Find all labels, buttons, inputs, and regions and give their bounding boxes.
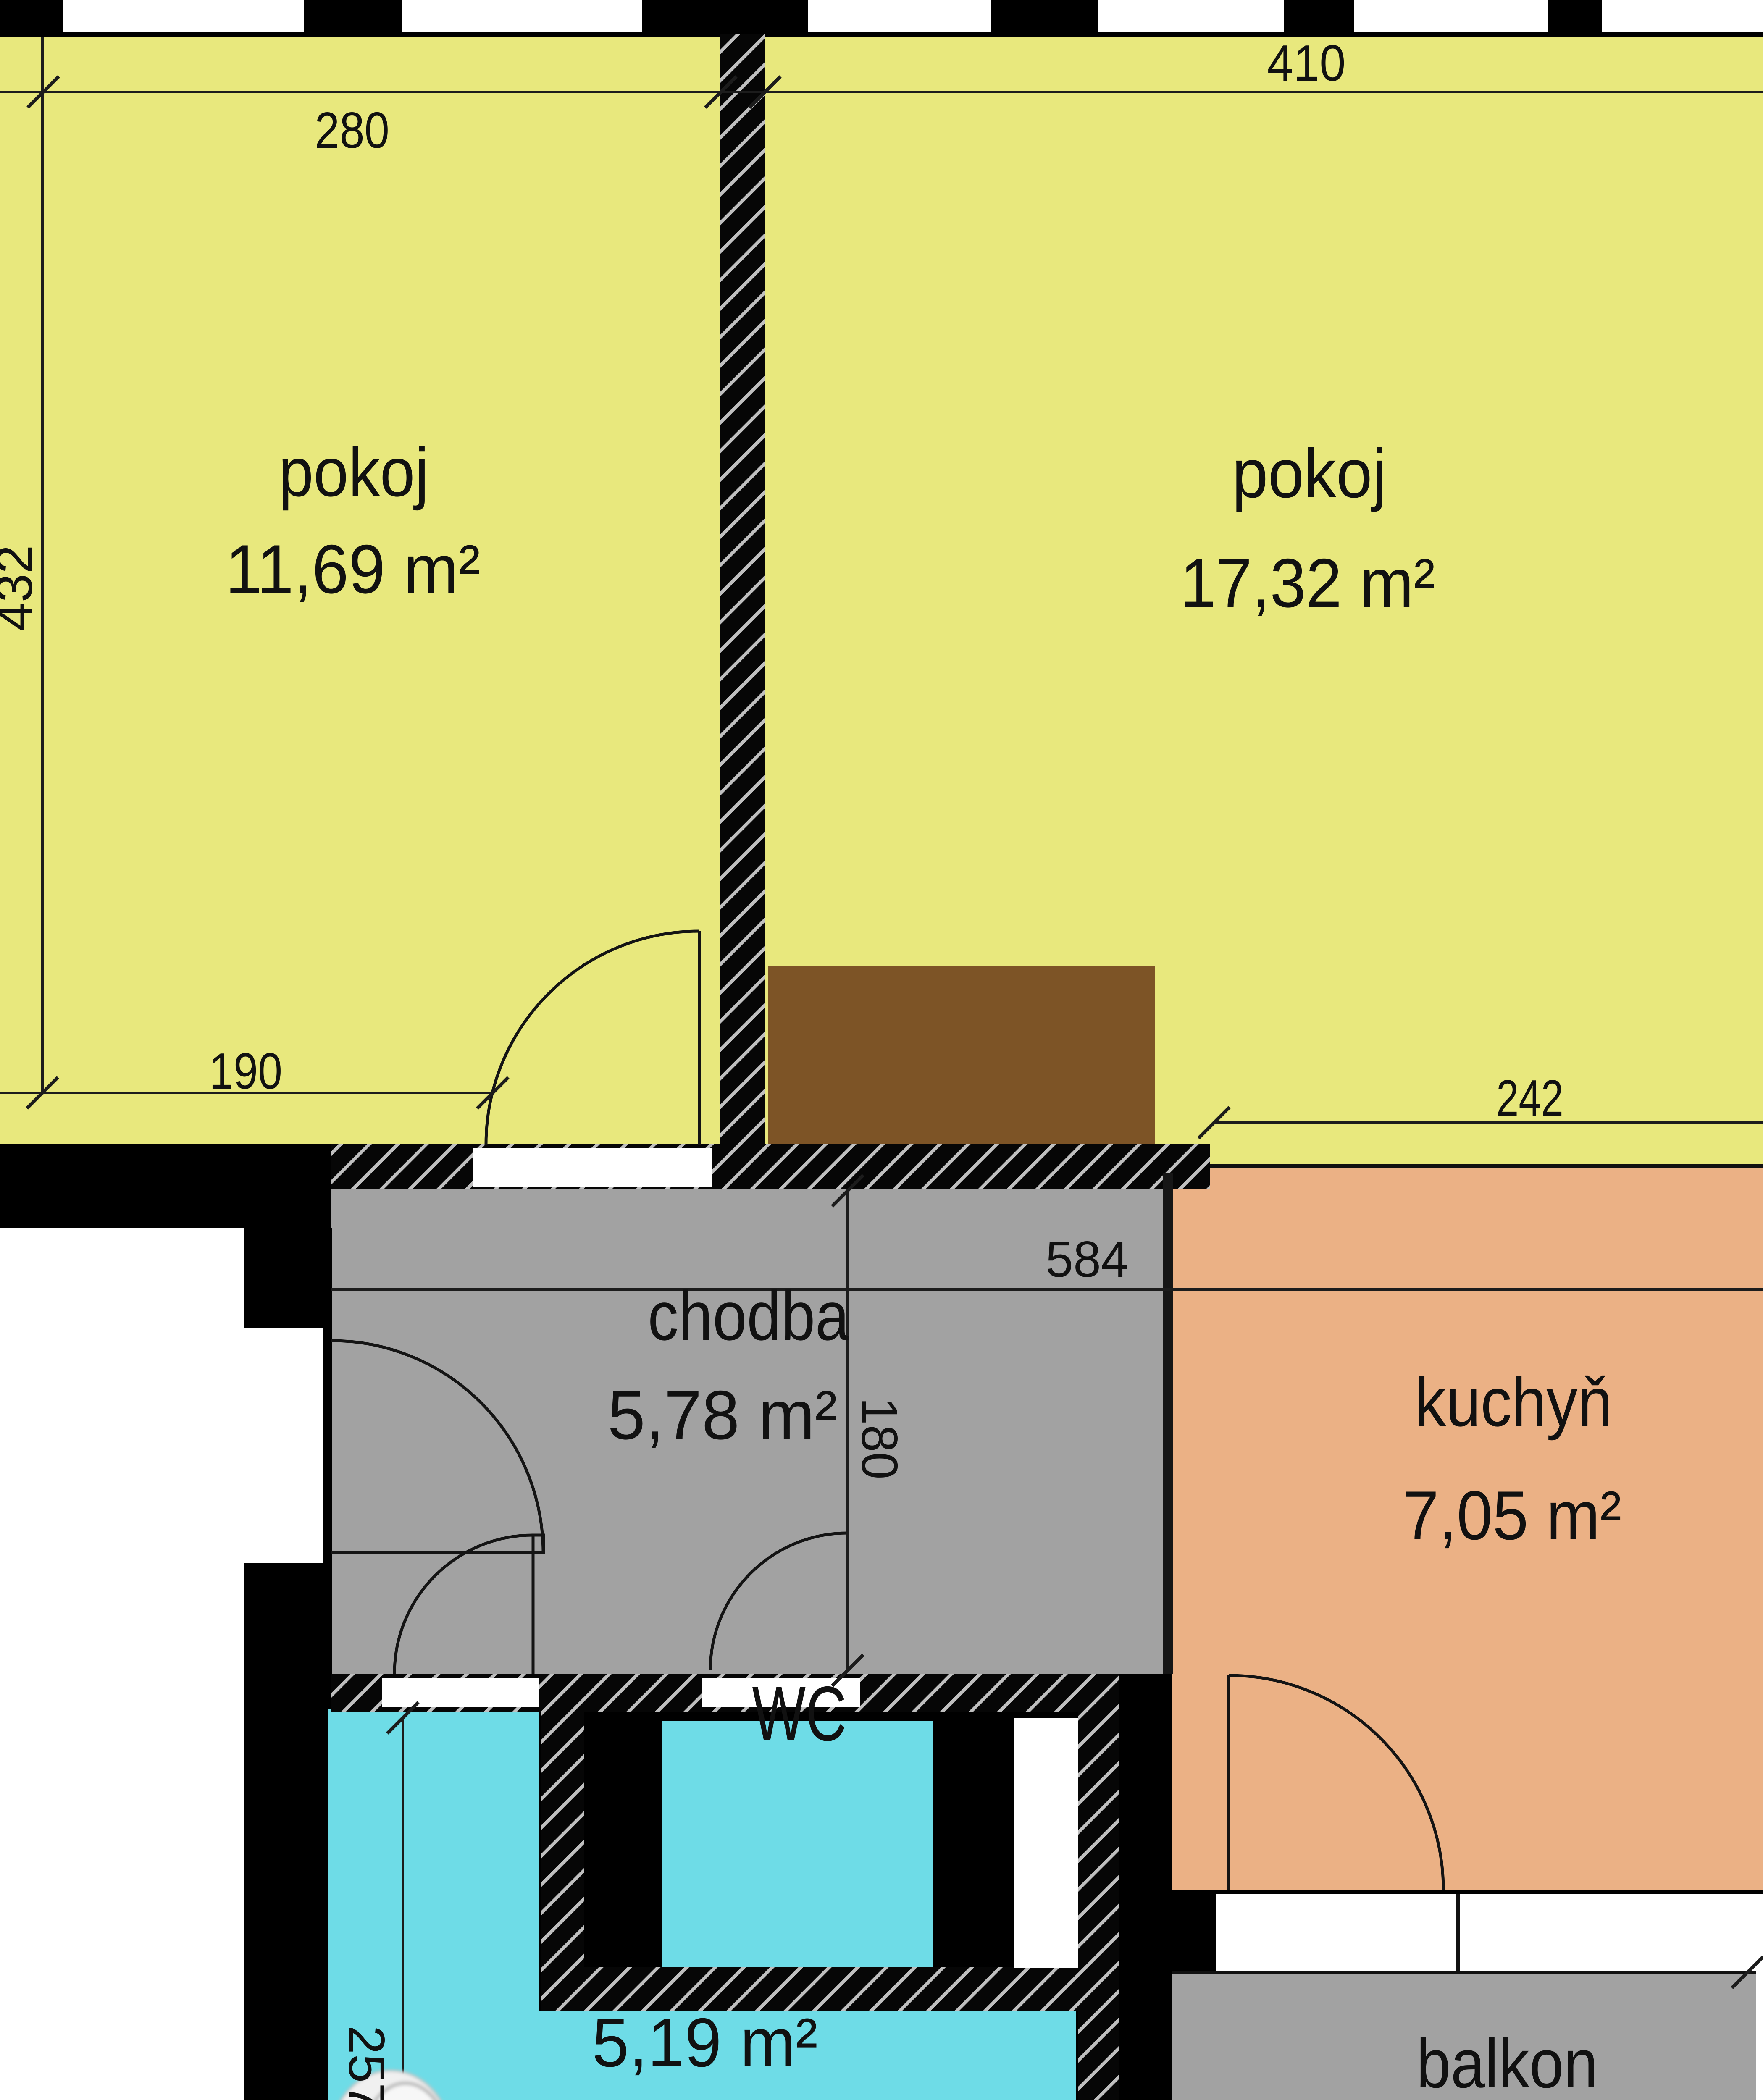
svg-text:pokoj: pokoj	[279, 433, 429, 511]
svg-text:11,69 m²: 11,69 m²	[226, 530, 481, 608]
svg-text:280: 280	[315, 102, 389, 159]
svg-text:17,32 m²: 17,32 m²	[1180, 544, 1435, 622]
svg-text:pokoj: pokoj	[1232, 435, 1387, 512]
svg-text:432: 432	[0, 545, 43, 631]
svg-text:180: 180	[851, 1398, 908, 1480]
svg-text:257: 257	[338, 2026, 395, 2100]
svg-text:410: 410	[1267, 34, 1346, 92]
svg-text:584: 584	[1046, 1231, 1129, 1288]
svg-text:242: 242	[1496, 1069, 1563, 1126]
svg-text:7,05 m²: 7,05 m²	[1403, 1477, 1621, 1554]
svg-text:kuchyň: kuchyň	[1415, 1363, 1612, 1441]
svg-text:190: 190	[209, 1042, 282, 1100]
svg-text:chodba: chodba	[648, 1277, 849, 1354]
svg-text:balkon: balkon	[1416, 2025, 1598, 2100]
svg-text:WC: WC	[752, 1671, 847, 1757]
svg-text:5,19 m²: 5,19 m²	[592, 2004, 818, 2081]
svg-text:5,78 m²: 5,78 m²	[608, 1376, 838, 1454]
